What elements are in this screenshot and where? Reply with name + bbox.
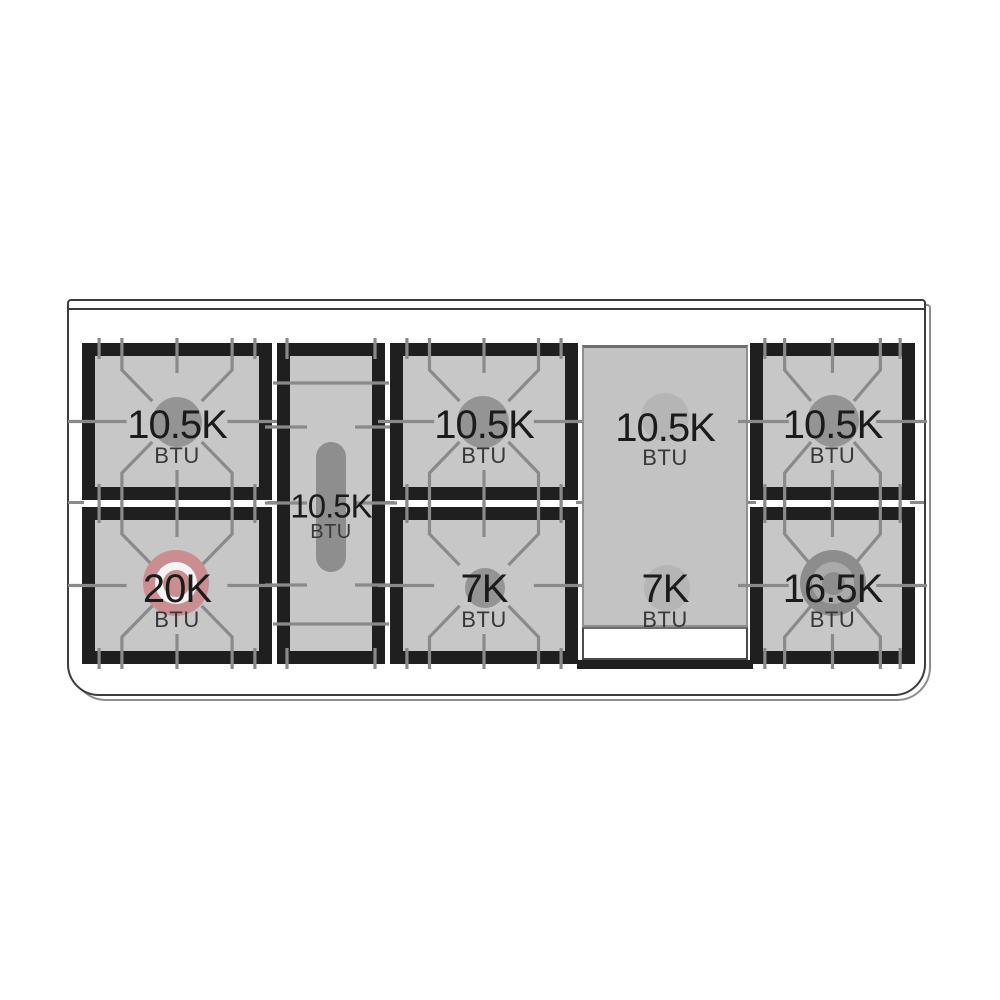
grate-crossbar	[910, 501, 924, 504]
btu-unit: BTU	[277, 522, 385, 542]
btu-unit: BTU	[582, 609, 748, 631]
griddle-bottom-frame	[577, 660, 753, 669]
btu-unit: BTU	[750, 609, 915, 631]
btu-value: 10.5K	[582, 408, 748, 448]
griddle-plate: 10.5K BTU 7K BTU	[582, 345, 748, 668]
btu-unit: BTU	[82, 445, 272, 467]
burner-left-rear: 10.5K BTU	[82, 343, 272, 500]
burner-middle-front: 7K BTU	[390, 507, 578, 664]
burner-middle-rear: 10.5K BTU	[390, 343, 578, 500]
btu-value: 16.5K	[750, 569, 915, 609]
btu-unit: BTU	[390, 609, 578, 631]
grate-crossbar	[68, 501, 84, 504]
btu-unit: BTU	[750, 445, 915, 467]
burner-left-front: 20K BTU	[82, 507, 272, 664]
btu-value: 7K	[582, 569, 748, 609]
btu-value: 10.5K	[277, 490, 385, 523]
btu-unit: BTU	[82, 609, 272, 631]
btu-unit: BTU	[582, 447, 748, 469]
btu-value: 7K	[390, 569, 578, 609]
burner-right-front: 16.5K BTU	[750, 507, 915, 664]
btu-value: 10.5K	[390, 405, 578, 445]
btu-unit: BTU	[390, 445, 578, 467]
cooktop-back-trim	[69, 301, 924, 310]
btu-value: 20K	[82, 569, 272, 609]
btu-value: 10.5K	[750, 405, 915, 445]
btu-value: 10.5K	[82, 405, 272, 445]
cooktop-diagram: 10.5K BTU 20K BTU 10.5K BTU 10.5K BTU 7K…	[0, 0, 1000, 1000]
burner-right-rear: 10.5K BTU	[750, 343, 915, 500]
burner-center-oval: 10.5K BTU	[277, 343, 385, 664]
